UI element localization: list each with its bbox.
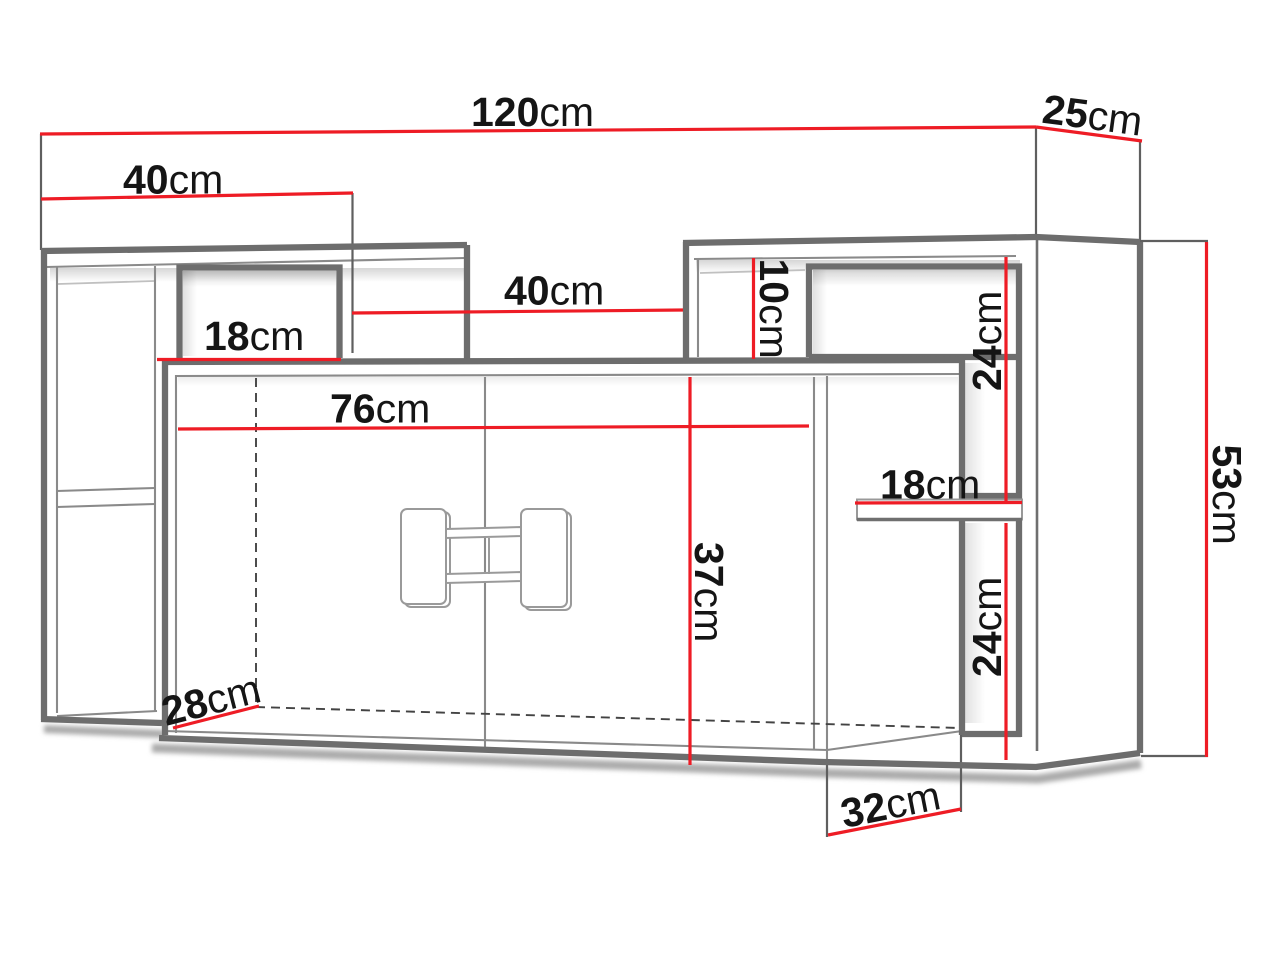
- svg-text:18cm: 18cm: [880, 462, 980, 508]
- svg-text:18cm: 18cm: [204, 313, 304, 359]
- svg-text:53cm: 53cm: [1204, 445, 1250, 545]
- svg-text:76cm: 76cm: [330, 386, 430, 432]
- svg-text:37cm: 37cm: [686, 542, 732, 642]
- svg-text:120cm: 120cm: [471, 89, 594, 135]
- svg-text:24cm: 24cm: [964, 577, 1010, 677]
- svg-text:24cm: 24cm: [964, 291, 1010, 391]
- svg-text:40cm: 40cm: [504, 268, 604, 314]
- svg-text:40cm: 40cm: [123, 157, 223, 203]
- svg-text:10cm: 10cm: [751, 259, 797, 359]
